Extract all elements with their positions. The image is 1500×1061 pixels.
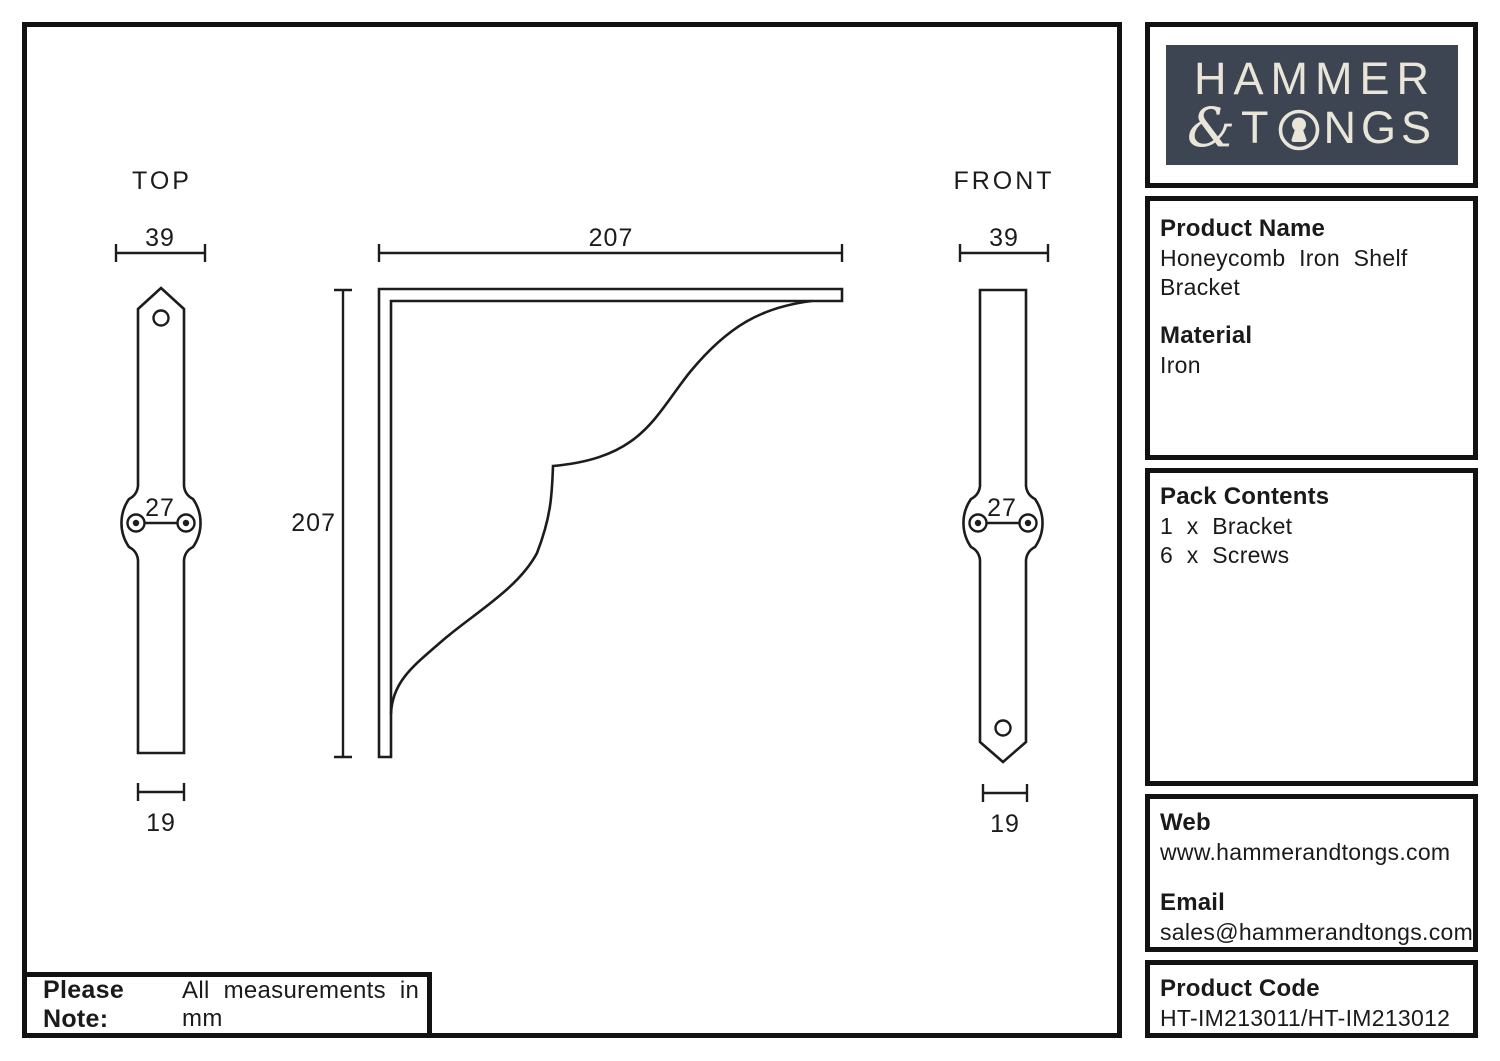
- material-value: Iron: [1160, 351, 1461, 380]
- product-code-panel: Product Code HT-IM213011/HT-IM213012: [1145, 960, 1478, 1038]
- side-height-dimension: 207: [291, 290, 352, 757]
- hammer-and-tongs-logo: HAMMER & T NGS: [1166, 45, 1458, 165]
- front-view-label: FRONT: [953, 167, 1054, 195]
- front-view: FRONT 39 27: [953, 167, 1054, 838]
- logo-panel: HAMMER & T NGS: [1145, 22, 1478, 188]
- web-heading: Web: [1160, 807, 1461, 838]
- top-width-value: 39: [145, 224, 175, 252]
- email-value: sales@hammerandtongs.com: [1160, 918, 1461, 947]
- bracket-scroll-curve: [391, 301, 812, 714]
- product-panel: Product Name Honeycomb Iron Shelf Bracke…: [1145, 196, 1478, 460]
- pack-contents-panel: Pack Contents 1 x Bracket 6 x Screws: [1145, 468, 1478, 786]
- top-view: TOP 39 27: [116, 167, 205, 837]
- product-name-heading: Product Name: [1160, 213, 1461, 244]
- contact-panel: Web www.hammerandtongs.com Email sales@h…: [1145, 794, 1478, 952]
- drawing-frame: TOP 39 27: [22, 22, 1122, 1038]
- side-view: 207 207: [291, 224, 842, 757]
- top-base-value: 19: [146, 809, 176, 837]
- note-text: All measurements in mm: [182, 977, 427, 1033]
- side-width-dimension: 207: [379, 224, 842, 262]
- note-label: Please Note:: [43, 976, 172, 1034]
- pack-contents-heading: Pack Contents: [1160, 481, 1461, 512]
- side-height-value: 207: [291, 509, 336, 537]
- logo-ampersand: &: [1187, 108, 1235, 148]
- material-heading: Material: [1160, 320, 1461, 351]
- logo-line2: & T NGS: [1187, 102, 1436, 154]
- top-view-label: TOP: [132, 167, 192, 195]
- top-width-dimension: 39: [116, 224, 205, 262]
- front-base-dimension: 19: [983, 784, 1027, 838]
- technical-drawing: TOP 39 27: [27, 27, 1117, 1033]
- email-heading: Email: [1160, 887, 1461, 918]
- spec-sheet: TOP 39 27: [0, 0, 1500, 1061]
- logo-ngs: NGS: [1324, 102, 1437, 154]
- front-width-value: 39: [989, 224, 1019, 252]
- keyhole-icon: [1276, 107, 1322, 153]
- front-screw-hole: [996, 721, 1011, 736]
- logo-t: T: [1241, 102, 1274, 154]
- top-base-dimension: 19: [138, 783, 184, 837]
- front-base-value: 19: [990, 810, 1020, 838]
- pack-item: 6 x Screws: [1160, 541, 1461, 570]
- front-width-dimension: 39: [960, 224, 1048, 262]
- pack-item: 1 x Bracket: [1160, 512, 1461, 541]
- product-code-value: HT-IM213011/HT-IM213012: [1160, 1004, 1461, 1033]
- side-width-value: 207: [589, 224, 634, 252]
- note-box: Please Note: All measurements in mm: [22, 972, 432, 1038]
- web-value: www.hammerandtongs.com: [1160, 838, 1461, 867]
- front-hole-spacing-value: 27: [987, 494, 1017, 522]
- product-code-heading: Product Code: [1160, 973, 1461, 1004]
- product-name-value: Honeycomb Iron Shelf Bracket: [1160, 244, 1461, 302]
- top-screw-hole: [154, 311, 169, 326]
- bracket-arms-outline: [379, 289, 842, 757]
- top-hole-spacing-value: 27: [145, 494, 175, 522]
